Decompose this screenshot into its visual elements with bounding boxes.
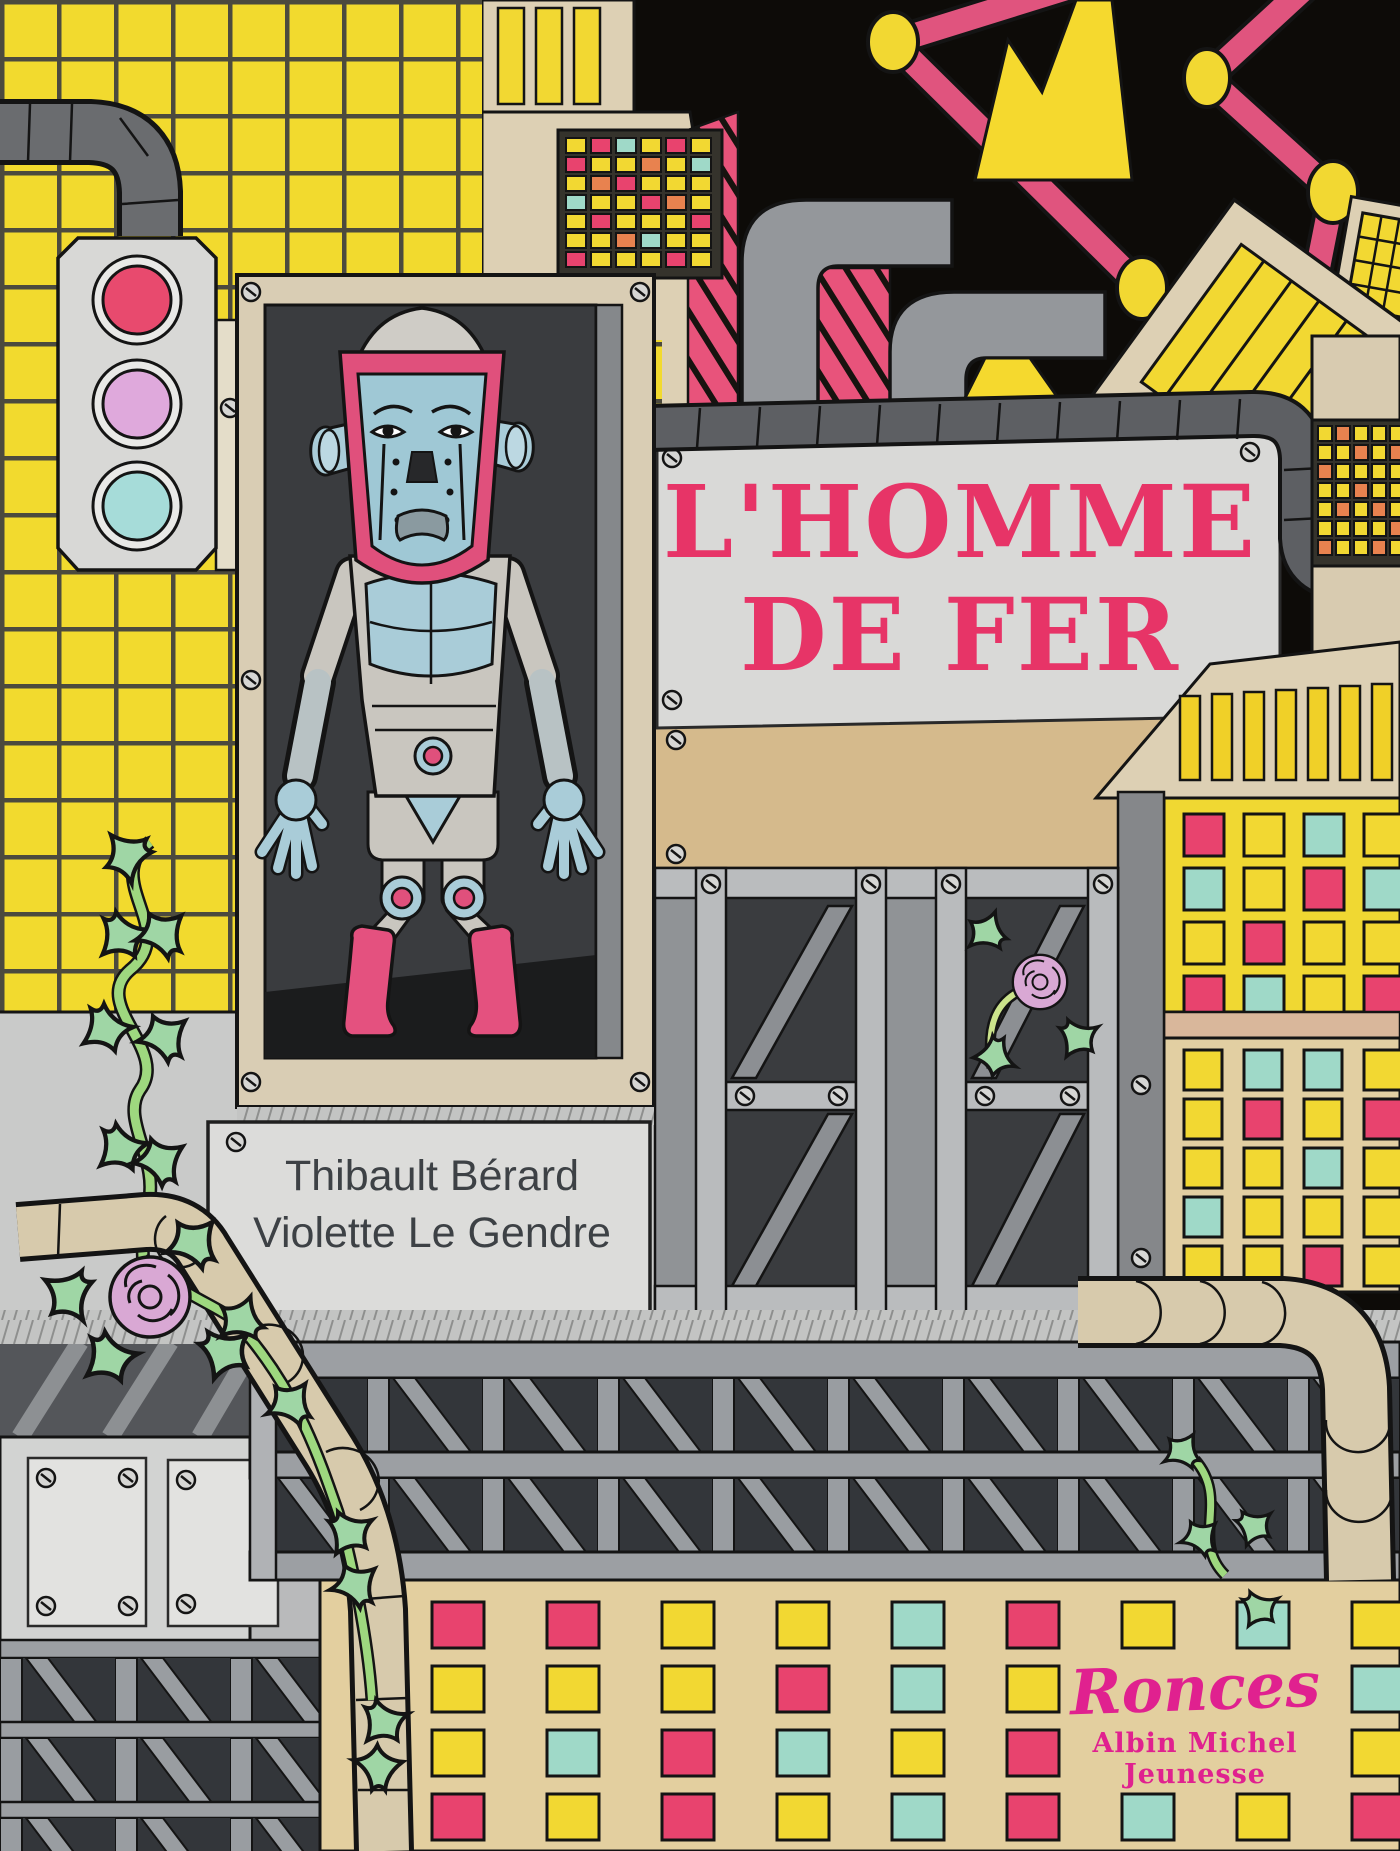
window-square (547, 1602, 599, 1648)
window-square (1304, 868, 1344, 910)
window-square (1372, 426, 1386, 441)
window-square (1354, 502, 1368, 517)
window-square (1390, 521, 1400, 536)
window-square (1354, 540, 1368, 555)
x-braced-doors (655, 868, 1118, 1312)
window-square (566, 176, 586, 191)
window-square (1318, 540, 1332, 555)
window-square (1184, 1099, 1222, 1139)
window-square (1336, 540, 1350, 555)
window-square (566, 252, 586, 267)
window-square (616, 214, 636, 229)
window-square (1304, 1050, 1342, 1090)
window-square (662, 1602, 714, 1648)
window-square (641, 176, 661, 191)
window-square (1364, 1197, 1400, 1237)
bottom-square-wall (320, 1580, 1400, 1851)
window-square (1184, 1050, 1222, 1090)
window-square (616, 195, 636, 210)
window-square (1122, 1794, 1174, 1840)
cover-illustration (0, 0, 1400, 1851)
window-square (1354, 521, 1368, 536)
window-square (777, 1666, 829, 1712)
window-square (1336, 483, 1350, 498)
window-square (1184, 1148, 1222, 1188)
window-square (1318, 502, 1332, 517)
window-square (691, 252, 711, 267)
window-square (1372, 521, 1386, 536)
window-square (1336, 502, 1350, 517)
window-square (591, 157, 611, 172)
window-square (1336, 521, 1350, 536)
window-square (1336, 445, 1350, 460)
window-square (641, 252, 661, 267)
window-square (1390, 426, 1400, 441)
window-square (1354, 464, 1368, 479)
window-square (1354, 483, 1368, 498)
window-square (1244, 922, 1284, 964)
window-square (691, 195, 711, 210)
window-square (591, 176, 611, 191)
window-square (1318, 426, 1332, 441)
window-square (662, 1666, 714, 1712)
window-square (1352, 1730, 1400, 1776)
left-lower-trusses (0, 1640, 330, 1851)
colored-window-walls (1118, 792, 1400, 1312)
window-square (1390, 540, 1400, 555)
window-square (641, 157, 661, 172)
window-square (666, 233, 686, 248)
window-square (1352, 1602, 1400, 1648)
window-square (1364, 1099, 1400, 1139)
window-square (691, 176, 711, 191)
window-square (1244, 1197, 1282, 1237)
window-square (432, 1730, 484, 1776)
window-square (641, 214, 661, 229)
window-square (1304, 1148, 1342, 1188)
window-square (641, 195, 661, 210)
window-square (1336, 464, 1350, 479)
window-square (662, 1730, 714, 1776)
window-square (691, 138, 711, 153)
window-square (566, 157, 586, 172)
author-name-plate (208, 1122, 650, 1312)
window-square (1244, 1099, 1282, 1139)
window-square (1184, 1197, 1222, 1237)
window-square (566, 233, 586, 248)
window-square (1007, 1602, 1059, 1648)
window-square (1304, 814, 1344, 856)
robot-display-cabinet (237, 275, 654, 1125)
window-square (1244, 1148, 1282, 1188)
window-square (1318, 445, 1332, 460)
window-square (1372, 540, 1386, 555)
window-square (1364, 814, 1400, 856)
window-square (432, 1666, 484, 1712)
window-square (1122, 1602, 1174, 1648)
window-square (1184, 922, 1224, 964)
robot-boot-left (344, 926, 395, 1036)
window-square (616, 233, 636, 248)
window-square (1237, 1794, 1289, 1840)
window-square (1336, 426, 1350, 441)
window-square (1364, 1246, 1400, 1286)
rose-flower (110, 1257, 190, 1337)
traffic-light (58, 238, 244, 570)
window-square (616, 138, 636, 153)
window-square (547, 1730, 599, 1776)
window-square (432, 1602, 484, 1648)
window-square (1354, 445, 1368, 460)
window-square (1244, 1050, 1282, 1090)
window-square (1390, 502, 1400, 517)
window-square (691, 157, 711, 172)
window-square (691, 214, 711, 229)
traffic-light-lilac (103, 370, 171, 438)
window-square (1244, 814, 1284, 856)
robot-boot-right (469, 926, 520, 1036)
window-square (641, 233, 661, 248)
window-square (777, 1794, 829, 1840)
window-square (1318, 483, 1332, 498)
window-square (591, 138, 611, 153)
window-square (1304, 922, 1344, 964)
window-square (662, 1794, 714, 1840)
window-square (1007, 1730, 1059, 1776)
window-square (547, 1794, 599, 1840)
window-square (1184, 868, 1224, 910)
window-square (666, 195, 686, 210)
window-square (1304, 1099, 1342, 1139)
window-square (591, 195, 611, 210)
window-square (777, 1602, 829, 1648)
window-square (892, 1730, 944, 1776)
window-square (566, 195, 586, 210)
window-square (1007, 1794, 1059, 1840)
window-square (892, 1794, 944, 1840)
window-square (1318, 464, 1332, 479)
window-square (1372, 483, 1386, 498)
window-square (1372, 445, 1386, 460)
window-square (691, 233, 711, 248)
window-square (1390, 464, 1400, 479)
window-square (1364, 868, 1400, 910)
window-square (1244, 868, 1284, 910)
window-square (1304, 1197, 1342, 1237)
window-square (1390, 445, 1400, 460)
window-square (432, 1794, 484, 1840)
window-square (1364, 1148, 1400, 1188)
window-square (566, 214, 586, 229)
window-square (566, 138, 586, 153)
window-square (616, 176, 636, 191)
window-square (1352, 1666, 1400, 1712)
window-square (666, 157, 686, 172)
traffic-light-blue (103, 472, 171, 540)
book-cover-illustration: L'HOMME DE FER Thibault Bérard Violette … (0, 0, 1400, 1851)
window-square (1372, 502, 1386, 517)
window-square (1372, 464, 1386, 479)
window-square (777, 1730, 829, 1776)
window-square (616, 252, 636, 267)
window-square (1354, 426, 1368, 441)
traffic-light-pink (103, 266, 171, 334)
window-square (892, 1602, 944, 1648)
window-square (666, 252, 686, 267)
window-square (591, 233, 611, 248)
window-square (1007, 1666, 1059, 1712)
window-square (666, 138, 686, 153)
window-square (892, 1666, 944, 1712)
window-square (1184, 814, 1224, 856)
window-square (591, 214, 611, 229)
window-square (641, 138, 661, 153)
window-square (547, 1666, 599, 1712)
window-square (1390, 483, 1400, 498)
window-square (616, 157, 636, 172)
window-square (591, 252, 611, 267)
window-square (1318, 521, 1332, 536)
window-square (1364, 922, 1400, 964)
window-square (1364, 1050, 1400, 1090)
window-square (1352, 1794, 1400, 1840)
window-square (666, 214, 686, 229)
window-square (666, 176, 686, 191)
